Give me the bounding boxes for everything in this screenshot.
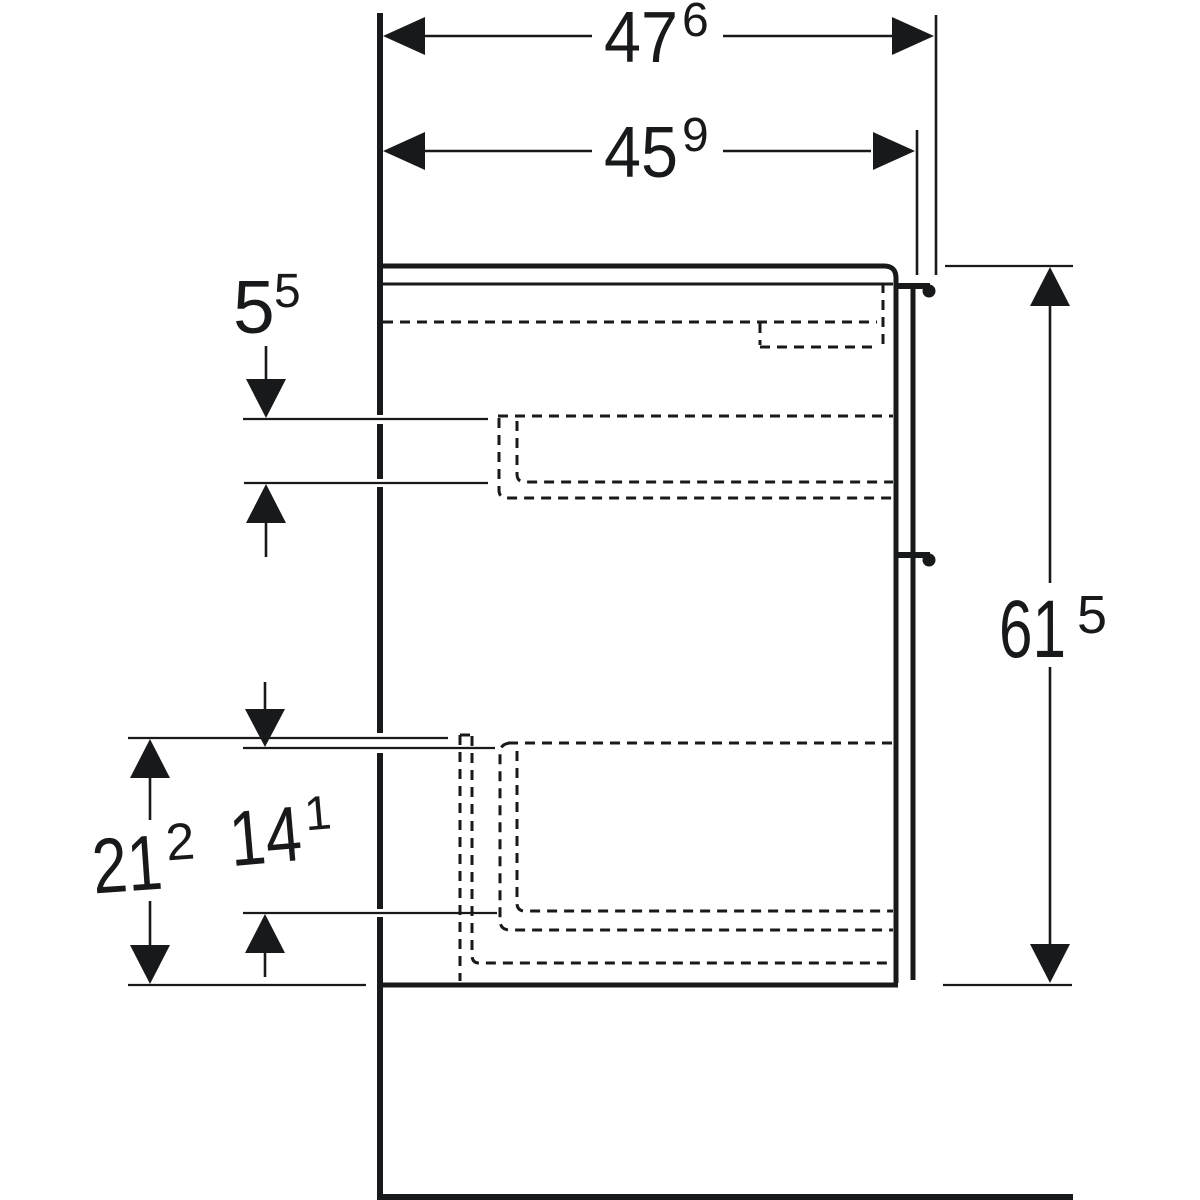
countertop-and-right-edge (381, 266, 896, 983)
arrow-down (1030, 944, 1070, 983)
dim-bottom-zone-label: 21 (89, 818, 165, 911)
siphon-cutout-dashed (383, 283, 883, 347)
drawer-runner-dashed (460, 735, 893, 981)
arrow-up (245, 914, 285, 953)
arrow-right (892, 17, 934, 55)
dim-inner-zone: 14 1 (226, 682, 497, 977)
dim-width-body-sup: 9 (682, 109, 709, 162)
arrow-down (130, 945, 170, 984)
dim-height-total: 61 5 (943, 266, 1107, 985)
dim-front-overlap: 5 5 (233, 265, 488, 557)
dim-inner-zone-text: 14 1 (226, 786, 337, 883)
dim-width-body: 45 9 (383, 109, 917, 275)
upper-drawer-dashed (498, 416, 893, 498)
dim-front-overlap-sup: 5 (274, 265, 301, 318)
dim-height-total-label: 61 (999, 584, 1066, 675)
dim-width-body-label: 45 (604, 113, 678, 193)
dim-inner-zone-sup: 1 (302, 786, 333, 841)
dim-bottom-zone-text: 21 2 (89, 812, 199, 910)
dim-width-total-sup: 6 (682, 0, 709, 47)
dim-width-total-label: 47 (604, 0, 678, 78)
dim-height-total-sup: 5 (1077, 585, 1107, 645)
technical-drawing-page: 47 6 45 9 5 5 61 5 (0, 0, 1200, 1200)
arrow-up (246, 484, 286, 523)
arrow-up (130, 739, 170, 778)
hidden-edges (383, 283, 893, 981)
arrow-left (383, 17, 425, 55)
arrow-left (383, 132, 425, 170)
cabinet-dimension-drawing: 47 6 45 9 5 5 61 5 (0, 0, 1200, 1200)
arrow-down (245, 709, 285, 747)
dim-bottom-zone-sup: 2 (164, 812, 197, 872)
dim-front-overlap-label: 5 (233, 265, 275, 349)
arrow-up (1030, 267, 1070, 306)
arrow-down (246, 379, 286, 418)
lower-drawer-dashed (500, 743, 893, 930)
dim-inner-zone-label: 14 (226, 789, 305, 883)
arrow-right (873, 132, 915, 170)
